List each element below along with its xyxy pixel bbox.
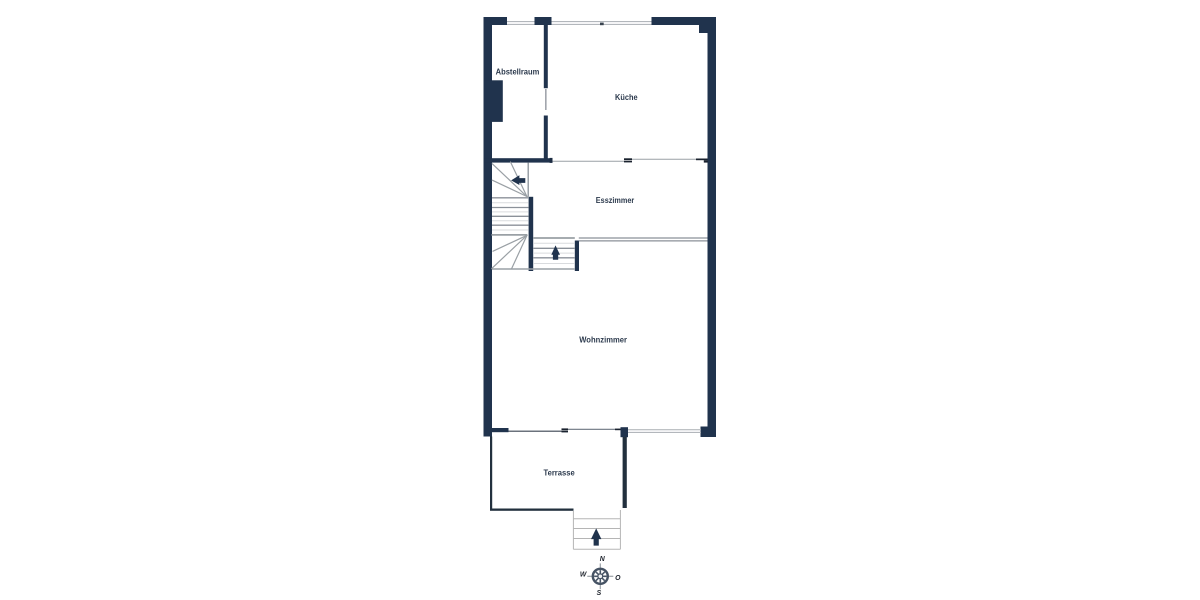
svg-text:O: O bbox=[615, 575, 621, 582]
svg-text:W: W bbox=[580, 572, 587, 579]
svg-text:Küche: Küche bbox=[615, 92, 638, 102]
svg-text:Wohnzimmer: Wohnzimmer bbox=[579, 334, 627, 344]
svg-text:Terrasse: Terrasse bbox=[544, 467, 575, 477]
svg-text:Esszimmer: Esszimmer bbox=[596, 195, 635, 205]
svg-text:S: S bbox=[597, 590, 602, 597]
svg-text:Abstellraum: Abstellraum bbox=[496, 67, 540, 77]
